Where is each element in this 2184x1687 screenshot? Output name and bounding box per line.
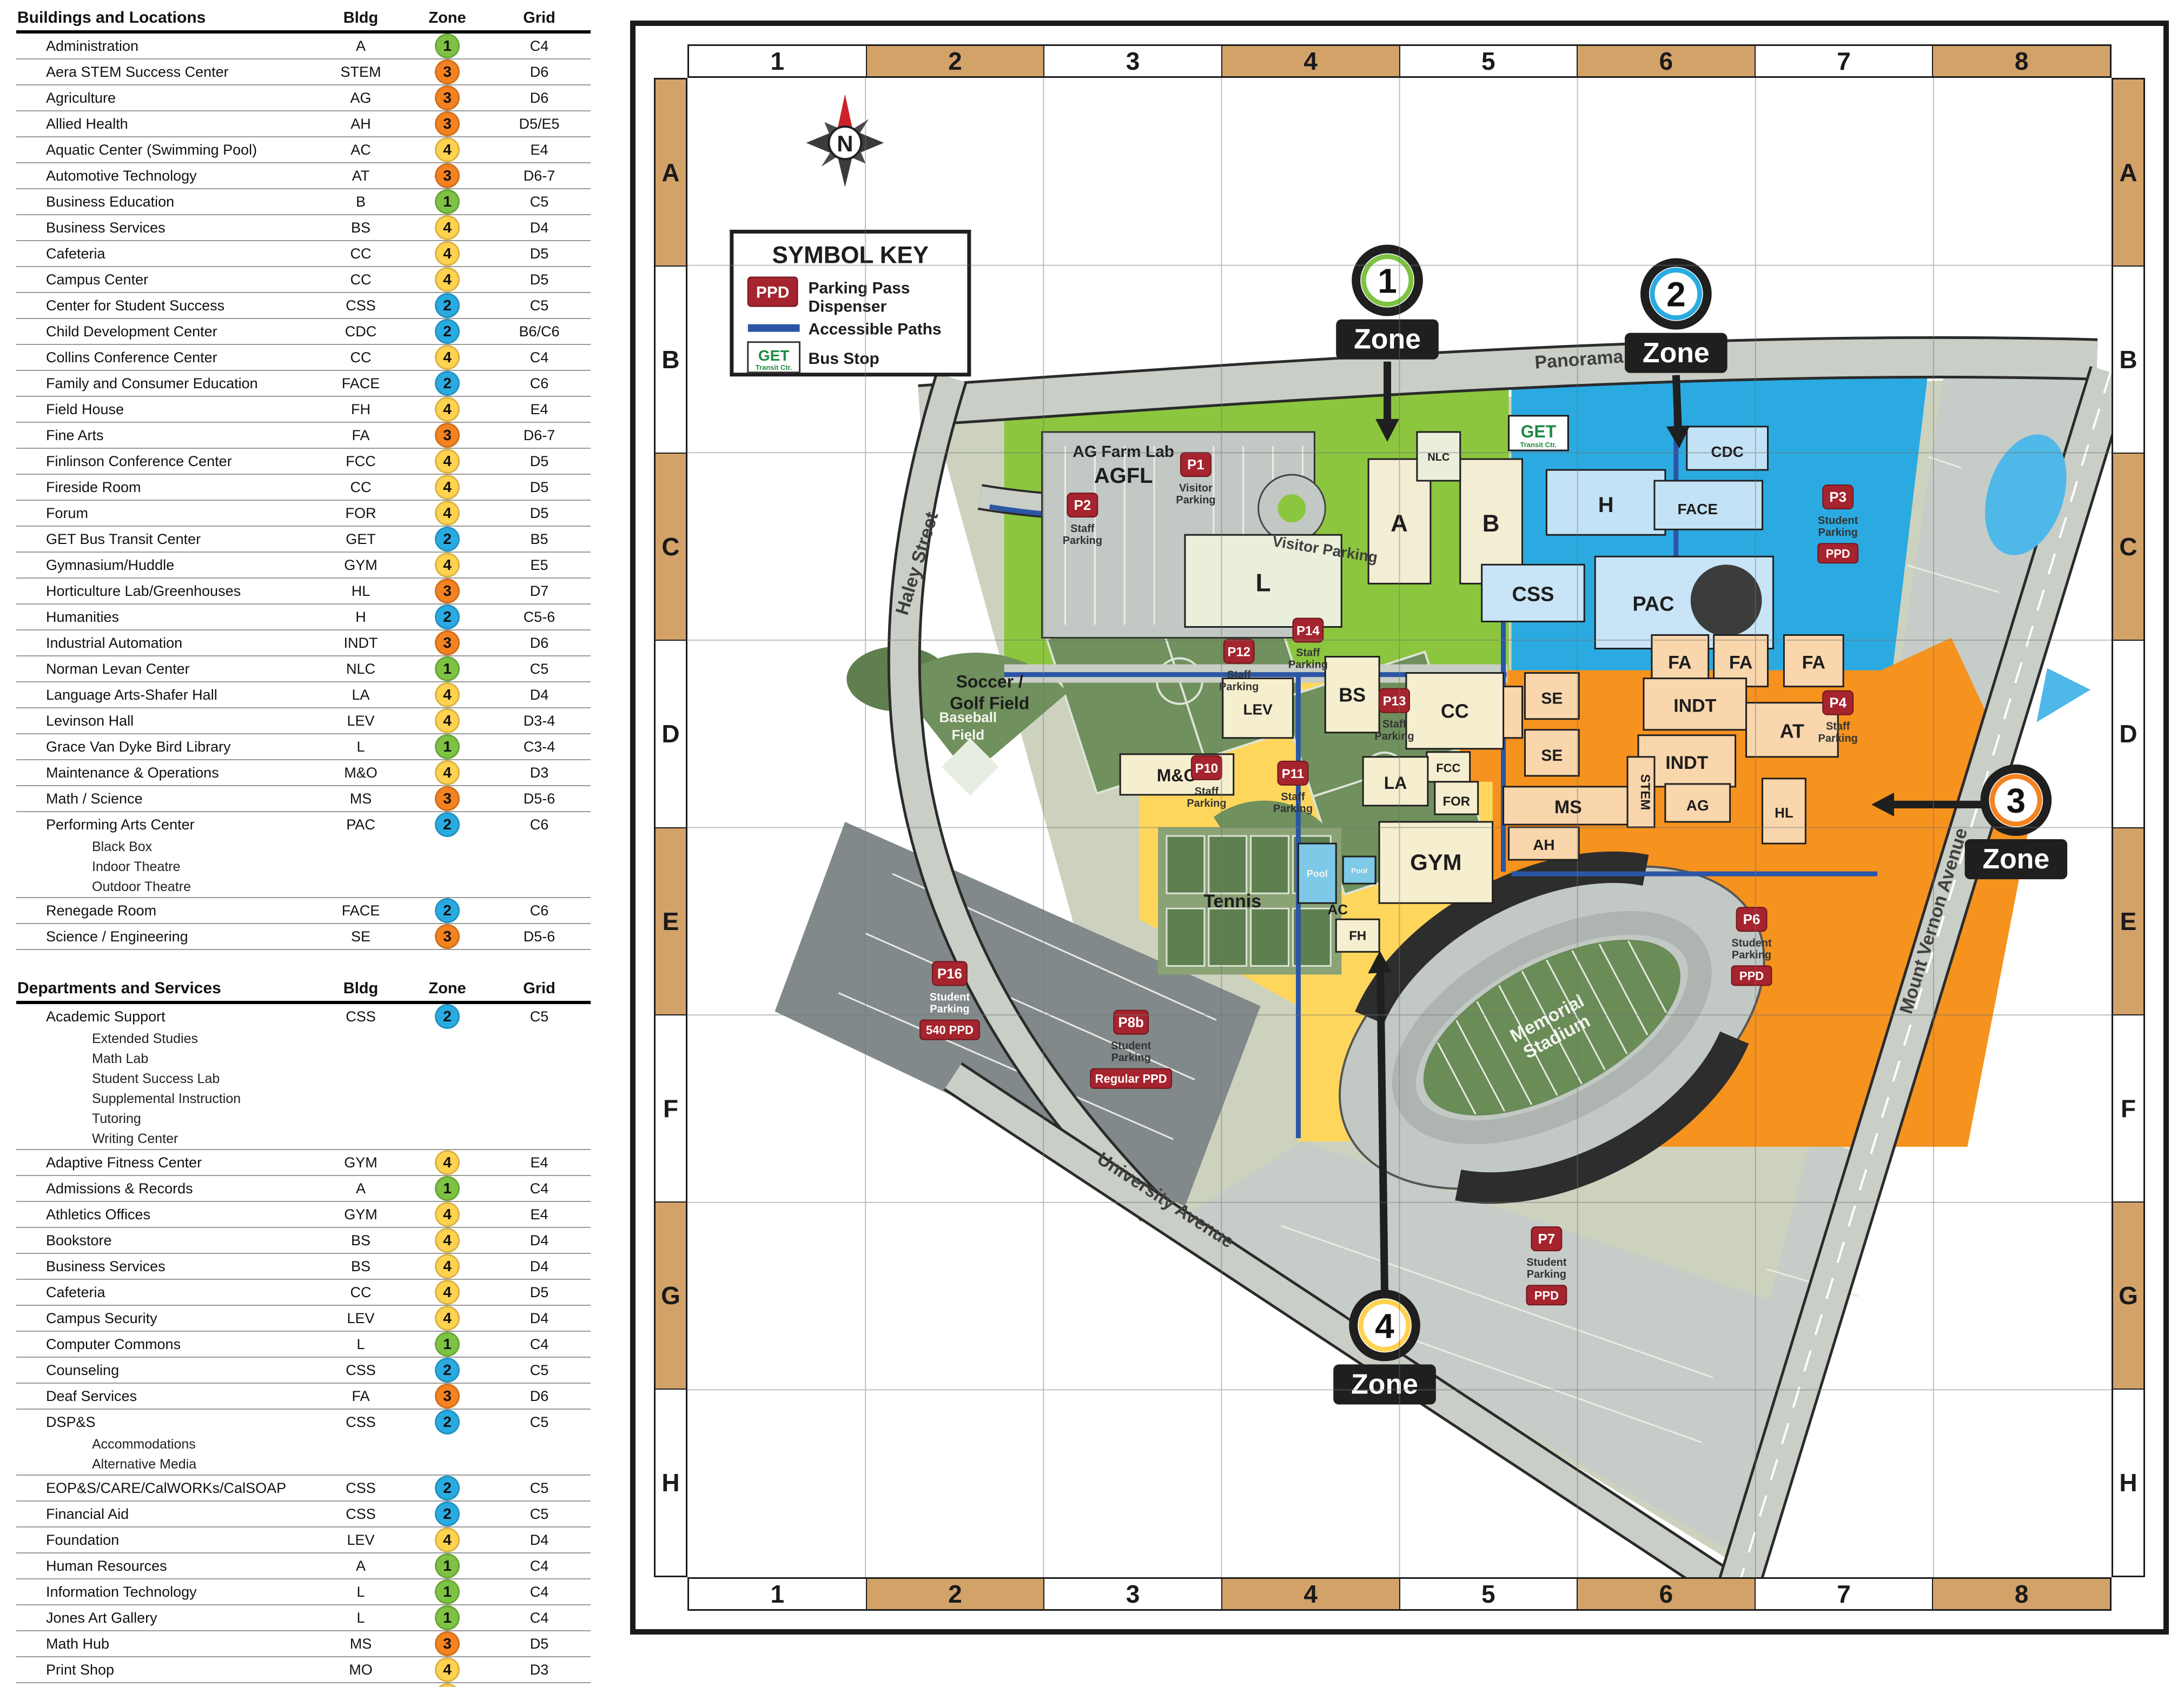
bldg-code: MS xyxy=(315,1636,407,1652)
table-row: Family and Consumer EducationFACE2C6 xyxy=(16,371,591,397)
svg-text:Parking: Parking xyxy=(1063,535,1102,547)
grid-ref: C4 xyxy=(488,38,591,55)
zone-badge: 4 xyxy=(407,1527,488,1552)
grid-ref: D5/E5 xyxy=(488,116,591,132)
table-row: EOP&S/CARE/CalWORKs/CalSOAPCSS2C5 xyxy=(16,1476,591,1502)
table-row: CafeteriaCC4D5 xyxy=(16,241,591,267)
location-name: Gymnasium/Huddle xyxy=(16,557,315,574)
zone-badge: 3 xyxy=(407,111,488,136)
bldg-code: CDC xyxy=(315,323,407,340)
zone-badge: 4 xyxy=(407,449,488,474)
grid-ref: D3-4 xyxy=(488,713,591,729)
svg-text:Zone: Zone xyxy=(1643,337,1710,369)
sub-location: Supplemental Instruction xyxy=(16,1089,591,1109)
table-row: BookstoreBS4D4 xyxy=(16,1228,591,1254)
agfl-label: AG Farm Lab xyxy=(1073,443,1174,461)
grid-ref: C5-6 xyxy=(488,609,591,626)
table-row: Collins Conference CenterCC4C4 xyxy=(16,345,591,371)
zone-badge: 2 xyxy=(407,1358,488,1383)
location-name: Forum xyxy=(16,505,315,522)
table-row: Deaf ServicesFA3D6 xyxy=(16,1384,591,1410)
table-row: Information TechnologyL1C4 xyxy=(16,1579,591,1605)
table-row: Gymnasium/HuddleGYM4E5 xyxy=(16,553,591,579)
zone-badge: 4 xyxy=(407,475,488,500)
bldg-code: LEV xyxy=(315,1310,407,1327)
grid-ref: E4 xyxy=(488,401,591,418)
svg-text:Pool: Pool xyxy=(1351,866,1367,875)
table-row: Fine ArtsFA3D6-7 xyxy=(16,423,591,449)
zone-badge: 2 xyxy=(407,1410,488,1434)
svg-text:Student: Student xyxy=(1111,1040,1151,1052)
bldg-code: CSS xyxy=(315,1008,407,1025)
grid-label-D: D xyxy=(2113,640,2143,827)
sub-location: Math Lab xyxy=(16,1049,591,1069)
table-row: GET Bus Transit CenterGET2B5 xyxy=(16,527,591,553)
svg-text:Transit Ctr.: Transit Ctr. xyxy=(1520,441,1557,449)
svg-text:STEM: STEM xyxy=(1638,774,1652,811)
grid-label-7: 7 xyxy=(1755,46,1932,76)
bldg-code: FA xyxy=(315,427,407,444)
soccer-label-1: Soccer / xyxy=(956,672,1023,692)
grid-ref: B5 xyxy=(488,531,591,548)
grid-columns-bottom: 12345678 xyxy=(687,1577,2112,1611)
svg-text:Parking: Parking xyxy=(1273,803,1313,815)
table-row: Levinson HallLEV4D3-4 xyxy=(16,708,591,734)
svg-text:GET: GET xyxy=(758,347,789,364)
svg-text:AT: AT xyxy=(1780,720,1804,742)
bldg-code: L xyxy=(315,1610,407,1626)
location-name: Athletics Offices xyxy=(16,1206,315,1223)
svg-text:N: N xyxy=(837,131,853,156)
svg-text:540 PPD: 540 PPD xyxy=(926,1024,974,1037)
grid-ref: E5 xyxy=(488,557,591,574)
table-row: Business ServicesBS4D4 xyxy=(16,215,591,241)
campus-map: 12345678 12345678 ABCDEFGH ABCDEFGH xyxy=(630,21,2169,1635)
bldg-code: A xyxy=(315,1180,407,1197)
zone-badge: 4 xyxy=(407,397,488,422)
grid-label-8: 8 xyxy=(1932,46,2110,76)
parking-marker-p7: P7StudentParkingPPD xyxy=(1526,1227,1567,1305)
svg-text:P1: P1 xyxy=(1187,456,1204,473)
zone-badge: 1 xyxy=(407,1605,488,1630)
grid-label-1: 1 xyxy=(689,46,866,76)
pond-small xyxy=(2036,668,2090,722)
grid-ref: C5 xyxy=(488,194,591,210)
grid-ref: D3 xyxy=(488,765,591,781)
svg-text:Parking Pass: Parking Pass xyxy=(808,280,910,297)
bldg-code: MO xyxy=(315,1662,407,1678)
table-row: Print ShopMO4D3 xyxy=(16,1657,591,1683)
grid-ref: C4 xyxy=(488,349,591,366)
table-row: Finlinson Conference CenterFCC4D5 xyxy=(16,449,591,475)
grid-ref: C5 xyxy=(488,1480,591,1497)
location-name: Industrial Automation xyxy=(16,635,315,652)
svg-text:GET: GET xyxy=(1521,422,1557,441)
zone-badge: 3 xyxy=(407,423,488,448)
svg-text:AG: AG xyxy=(1686,797,1709,814)
zone-badge: 4 xyxy=(407,1280,488,1305)
location-name: Science / Engineering xyxy=(16,928,315,945)
svg-text:4: 4 xyxy=(1375,1306,1394,1345)
table-row: CafeteriaCC4D5 xyxy=(16,1280,591,1306)
location-name: Renegade Room xyxy=(16,902,315,919)
location-name: Field House xyxy=(16,401,315,418)
svg-text:Dispenser: Dispenser xyxy=(808,298,886,316)
zone-badge: 4 xyxy=(407,241,488,266)
location-name: Foundation xyxy=(16,1532,315,1549)
roundabout-center xyxy=(1278,494,1306,522)
svg-text:FOR: FOR xyxy=(1442,794,1470,809)
zone-badge: 2 xyxy=(407,605,488,629)
grid-label-2: 2 xyxy=(866,46,1044,76)
svg-text:AH: AH xyxy=(1533,836,1554,853)
table-row: Science / EngineeringSE3D5-6 xyxy=(16,924,591,950)
bldg-code: LA xyxy=(315,687,407,703)
sub-location: Student Success Lab xyxy=(16,1069,591,1089)
grid-label-3: 3 xyxy=(1043,46,1221,76)
grid-label-F: F xyxy=(2113,1014,2143,1201)
bldg-code: CSS xyxy=(315,1480,407,1497)
grid-label-3: 3 xyxy=(1043,1579,1221,1609)
bldg-code: STEM xyxy=(315,64,407,81)
grid-ref: C5 xyxy=(488,1414,591,1431)
grid-ref: D5-6 xyxy=(488,928,591,945)
svg-text:FA: FA xyxy=(1668,653,1691,673)
table-row: Field HouseFH4E4 xyxy=(16,397,591,423)
zone-badge: 4 xyxy=(407,1228,488,1253)
sub-location: Indoor Theatre xyxy=(16,857,591,877)
svg-text:Parking: Parking xyxy=(1818,733,1858,745)
grid-ref: C6 xyxy=(488,375,591,392)
location-name: Family and Consumer Education xyxy=(16,375,315,392)
svg-text:PPD: PPD xyxy=(1534,1289,1559,1302)
grid-ref: D6-7 xyxy=(488,427,591,444)
zone-badge: 1 xyxy=(407,189,488,214)
location-name: Aera STEM Success Center xyxy=(16,64,315,81)
location-name: DSP&S xyxy=(16,1414,315,1431)
table-row: DSP&SCSS2C5AccommodationsAlternative Med… xyxy=(16,1410,591,1476)
table-row: Admissions & RecordsA1C4 xyxy=(16,1176,591,1202)
svg-text:P12: P12 xyxy=(1227,645,1250,660)
svg-text:P4: P4 xyxy=(1829,695,1847,711)
bldg-code: H xyxy=(315,609,407,626)
grid-label-A: A xyxy=(2113,79,2143,265)
grid-ref: D4 xyxy=(488,687,591,703)
zone-badge: 2 xyxy=(407,1476,488,1500)
bldg-code: CSS xyxy=(315,1414,407,1431)
table-row: Computer CommonsL1C4 xyxy=(16,1332,591,1358)
grid-ref: E4 xyxy=(488,142,591,158)
grid-ref: D5 xyxy=(488,505,591,522)
zone-badge: 1 xyxy=(407,1553,488,1578)
zone-badge: 2 xyxy=(407,371,488,396)
table-row: Renegade RoomFACE2C6 xyxy=(16,898,591,924)
grid-ref: C5 xyxy=(488,661,591,678)
table-header: Departments and ServicesBldgZoneGrid xyxy=(16,979,591,1004)
grid-ref: D5 xyxy=(488,1284,591,1301)
svg-text:PAC: PAC xyxy=(1632,593,1674,615)
bldg-code: MS xyxy=(315,791,407,807)
symbol-key: SYMBOL KEY PPD Parking Pass Dispenser Ac… xyxy=(732,231,969,374)
svg-text:Student: Student xyxy=(1818,515,1858,527)
bldg-code: GYM xyxy=(315,557,407,574)
svg-text:B: B xyxy=(1483,510,1500,537)
grid-ref: D6 xyxy=(488,1388,591,1405)
bldg-code: CSS xyxy=(315,297,407,314)
sub-location: Tutoring xyxy=(16,1109,591,1129)
bldg-code: NLC xyxy=(315,661,407,678)
grid-ref: C4 xyxy=(488,1336,591,1353)
grid-ref: D5 xyxy=(488,1636,591,1652)
svg-text:FCC: FCC xyxy=(1436,761,1460,775)
table-row: Athletics OfficesGYM4E4 xyxy=(16,1202,591,1228)
location-name: Cafeteria xyxy=(16,245,315,262)
svg-text:Parking: Parking xyxy=(1288,659,1328,671)
zone-badge: 2 xyxy=(407,812,488,837)
location-name: Administration xyxy=(16,38,315,55)
grid-ref: D4 xyxy=(488,1232,591,1249)
table-row: Campus CenterCC4D5 xyxy=(16,267,591,293)
table-row: AdministrationA1C4 xyxy=(16,34,591,59)
location-name: Computer Commons xyxy=(16,1336,315,1353)
grid-ref: D4 xyxy=(488,1310,591,1327)
zone-badge: 4 xyxy=(407,1202,488,1227)
location-name: Performing Arts Center xyxy=(16,816,315,833)
grid-label-8: 8 xyxy=(1932,1579,2110,1609)
zone-badge: 4 xyxy=(407,1306,488,1331)
location-name: Finlinson Conference Center xyxy=(16,453,315,470)
svg-text:P11: P11 xyxy=(1282,767,1304,781)
svg-text:FA: FA xyxy=(1802,653,1825,673)
grid-label-4: 4 xyxy=(1221,1579,1399,1609)
svg-text:Student: Student xyxy=(1731,937,1772,949)
location-name: Fine Arts xyxy=(16,427,315,444)
grid-label-E: E xyxy=(656,827,686,1014)
table-row: Business ServicesBS4D4 xyxy=(16,1254,591,1280)
svg-text:Tennis: Tennis xyxy=(1203,891,1261,912)
table-row: Allied HealthAH3D5/E5 xyxy=(16,111,591,137)
location-name: Child Development Center xyxy=(16,323,315,340)
location-name: EOP&S/CARE/CalWORKs/CalSOAP xyxy=(16,1480,315,1497)
grid-ref: C5 xyxy=(488,1362,591,1379)
bldg-code: BS xyxy=(315,1258,407,1275)
table-row: ForumFOR4D5 xyxy=(16,501,591,527)
grid-label-D: D xyxy=(656,640,686,827)
svg-text:Staff: Staff xyxy=(1227,669,1252,681)
grid-columns-top: 12345678 xyxy=(687,44,2112,78)
location-name: Collins Conference Center xyxy=(16,349,315,366)
table-row: Fireside RoomCC4D5 xyxy=(16,475,591,501)
grid-ref: D3 xyxy=(488,1662,591,1678)
svg-text:Bus Stop: Bus Stop xyxy=(808,350,879,368)
grid-label-2: 2 xyxy=(866,1579,1044,1609)
bldg-code: M&O xyxy=(315,765,407,781)
svg-text:INDT: INDT xyxy=(1673,696,1716,716)
location-name: Business Services xyxy=(16,1258,315,1275)
zone-badge: 3 xyxy=(407,163,488,188)
grid-label-C: C xyxy=(656,453,686,640)
svg-text:Parking: Parking xyxy=(1818,527,1858,539)
table-row: Human ResourcesA1C4 xyxy=(16,1553,591,1579)
svg-text:Parking: Parking xyxy=(1374,730,1414,742)
bldg-code: SE xyxy=(315,928,407,945)
zone-badge: 3 xyxy=(407,1631,488,1656)
location-name: Grace Van Dyke Bird Library xyxy=(16,739,315,755)
bldg-code: L xyxy=(315,739,407,755)
sub-location: Writing Center xyxy=(16,1129,591,1149)
grid-ref: D6-7 xyxy=(488,168,591,184)
svg-text:FH: FH xyxy=(1349,928,1366,943)
table-row: Financial AidCSS2C5 xyxy=(16,1502,591,1527)
table-row: Center for Student SuccessCSS2C5 xyxy=(16,293,591,319)
zone-badge: 1 xyxy=(407,656,488,681)
zone-badge: 4 xyxy=(407,137,488,162)
table-row: FoundationLEV4D4 xyxy=(16,1527,591,1553)
grid-label-6: 6 xyxy=(1577,1579,1755,1609)
grid-ref: C4 xyxy=(488,1180,591,1197)
location-name: Aquatic Center (Swimming Pool) xyxy=(16,142,315,158)
map-area: Baseball Field Softball Field Tennis xyxy=(687,78,2112,1577)
grid-ref: D5-6 xyxy=(488,791,591,807)
bldg-code: AH xyxy=(315,116,407,132)
grid-ref: C3-4 xyxy=(488,739,591,755)
svg-text:Visitor: Visitor xyxy=(1179,482,1213,494)
svg-text:Regular PPD: Regular PPD xyxy=(1095,1072,1167,1086)
bldg-code: CC xyxy=(315,479,407,496)
grid-ref: E4 xyxy=(488,1206,591,1223)
bldg-code: CSS xyxy=(315,1362,407,1379)
bldg-code: CSS xyxy=(315,1506,407,1523)
buildings-and-locations-table: Buildings and LocationsBldgZoneGridAdmin… xyxy=(16,9,591,950)
svg-text:SE: SE xyxy=(1541,690,1563,708)
accessible-path-icon xyxy=(748,324,800,332)
bldg-code: AG xyxy=(315,90,407,107)
zone-badge: 3 xyxy=(407,1384,488,1409)
location-name: Print Shop xyxy=(16,1662,315,1678)
grid-ref: B6/C6 xyxy=(488,323,591,340)
table-row: Public SafetyLEV4D4 xyxy=(16,1683,591,1687)
zone-badge: 4 xyxy=(407,1657,488,1682)
zone-badge: 4 xyxy=(407,760,488,785)
grid-ref: D6 xyxy=(488,64,591,81)
table-row: Grace Van Dyke Bird LibraryL1C3-4 xyxy=(16,734,591,760)
svg-text:Staff: Staff xyxy=(1826,721,1850,733)
svg-text:P13: P13 xyxy=(1383,694,1406,709)
table-row: Aquatic Center (Swimming Pool)AC4E4 xyxy=(16,137,591,163)
grid-ref: D4 xyxy=(488,220,591,236)
location-name: Levinson Hall xyxy=(16,713,315,729)
location-name: Humanities xyxy=(16,609,315,626)
sub-location: Outdoor Theatre xyxy=(16,877,591,897)
zone-badge: 2 xyxy=(407,898,488,923)
table-row: Campus SecurityLEV4D4 xyxy=(16,1306,591,1332)
bldg-code: LEV xyxy=(315,713,407,729)
svg-text:Parking: Parking xyxy=(930,1003,969,1015)
svg-text:P14: P14 xyxy=(1296,623,1320,638)
svg-text:Parking: Parking xyxy=(1176,494,1215,506)
location-name: Language Arts-Shafer Hall xyxy=(16,687,315,703)
zone-badge: 3 xyxy=(407,579,488,603)
grid-ref: D7 xyxy=(488,583,591,600)
table-row: AgricultureAG3D6 xyxy=(16,85,591,111)
bldg-code: GYM xyxy=(315,1206,407,1223)
zone-badge: 2 xyxy=(407,319,488,344)
bldg-code: FCC xyxy=(315,453,407,470)
location-name: Automotive Technology xyxy=(16,168,315,184)
svg-text:AC: AC xyxy=(1328,901,1348,918)
zone-badge: 3 xyxy=(407,924,488,949)
bldg-code: L xyxy=(315,1336,407,1353)
svg-text:GYM: GYM xyxy=(1410,849,1461,875)
grid-rows-left: ABCDEFGH xyxy=(654,78,687,1577)
table-row: Maintenance & OperationsM&O4D3 xyxy=(16,760,591,786)
svg-text:P7: P7 xyxy=(1538,1231,1556,1247)
grid-label-H: H xyxy=(656,1389,686,1576)
svg-text:CC: CC xyxy=(1441,700,1469,722)
grid-ref: D4 xyxy=(488,1258,591,1275)
svg-text:HL: HL xyxy=(1775,805,1793,821)
grid-label-H: H xyxy=(2113,1389,2143,1576)
grid-ref: C5 xyxy=(488,1008,591,1025)
svg-text:Parking: Parking xyxy=(1111,1052,1151,1064)
zone-badge: 3 xyxy=(407,85,488,110)
svg-text:LA: LA xyxy=(1384,773,1407,793)
location-name: GET Bus Transit Center xyxy=(16,531,315,548)
bldg-code: CC xyxy=(315,245,407,262)
svg-text:Student: Student xyxy=(1526,1257,1567,1268)
bldg-code: A xyxy=(315,1558,407,1575)
grid-ref: C5 xyxy=(488,297,591,314)
svg-text:Zone: Zone xyxy=(1982,843,2049,875)
svg-text:Staff: Staff xyxy=(1382,719,1407,730)
grid-label-C: C xyxy=(2113,453,2143,640)
bldg-code: FOR xyxy=(315,505,407,522)
sub-location: Extended Studies xyxy=(16,1029,591,1049)
svg-text:Staff: Staff xyxy=(1281,791,1305,803)
location-name: Human Resources xyxy=(16,1558,315,1575)
svg-text:H: H xyxy=(1598,493,1614,517)
svg-text:Parking: Parking xyxy=(1527,1268,1566,1280)
svg-text:PPD: PPD xyxy=(1739,969,1764,982)
svg-text:Transit Ctr.: Transit Ctr. xyxy=(756,363,792,371)
bldg-code: FACE xyxy=(315,375,407,392)
zone-badge: 2 xyxy=(407,293,488,318)
grid-ref: D5 xyxy=(488,453,591,470)
svg-text:Zone: Zone xyxy=(1354,324,1421,355)
bldg-code: HL xyxy=(315,583,407,600)
svg-text:SYMBOL KEY: SYMBOL KEY xyxy=(772,242,929,268)
bldg-code: FH xyxy=(315,401,407,418)
bldg-code: FA xyxy=(315,1388,407,1405)
svg-text:CSS: CSS xyxy=(1512,583,1554,606)
zone-badge: 4 xyxy=(407,1150,488,1175)
location-name: Campus Security xyxy=(16,1310,315,1327)
grid-ref: D6 xyxy=(488,635,591,652)
grid-ref: D5 xyxy=(488,479,591,496)
bldg-code: PAC xyxy=(315,816,407,833)
sub-location: Alternative Media xyxy=(16,1454,591,1475)
svg-text:Parking: Parking xyxy=(1732,949,1771,961)
departments-and-services-table: Departments and ServicesBldgZoneGridAcad… xyxy=(16,979,591,1687)
zone-badge: 4 xyxy=(407,1254,488,1279)
svg-text:P16: P16 xyxy=(937,965,962,981)
svg-text:P8b: P8b xyxy=(1118,1014,1144,1030)
zone-badge: 1 xyxy=(407,1579,488,1604)
zone-badge: 2 xyxy=(407,1004,488,1029)
grid-ref: C4 xyxy=(488,1558,591,1575)
grid-ref: D6 xyxy=(488,90,591,107)
bldg-code: GYM xyxy=(315,1154,407,1171)
